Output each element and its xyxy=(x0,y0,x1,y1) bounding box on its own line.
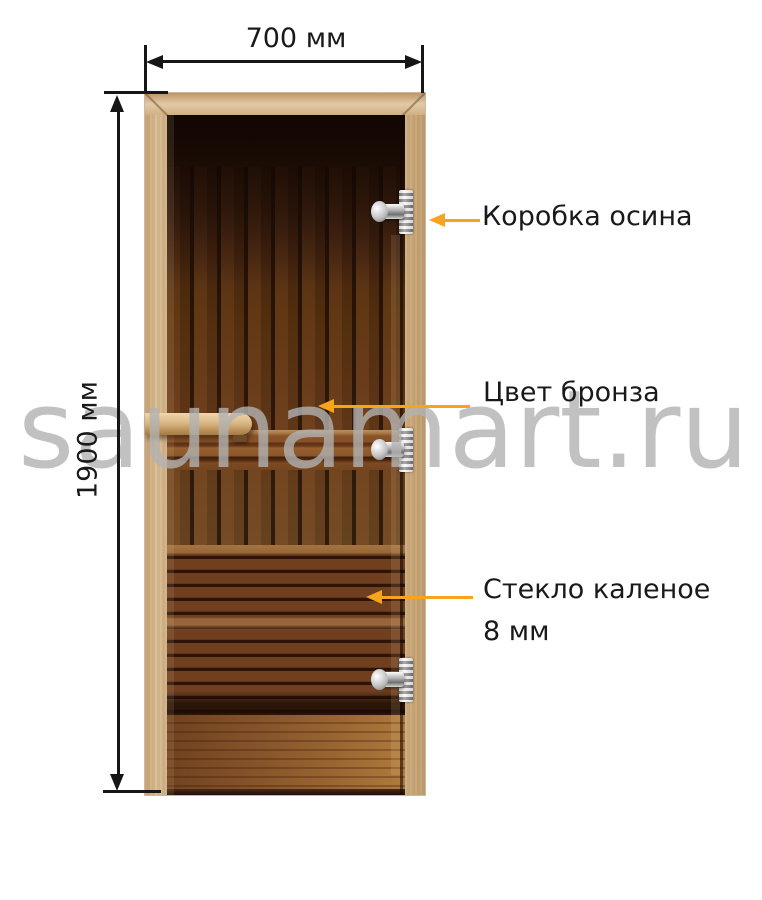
height-dim-arrow-down-icon xyxy=(110,774,124,791)
sauna-door-product-diagram: saunamart.ru 700 мм 1900 мм Коробка осин… xyxy=(0,0,762,900)
callout-color-arrowhead-icon xyxy=(318,399,334,413)
height-dim-arrow-up-icon xyxy=(110,95,124,112)
width-dimension-label: 700 мм xyxy=(246,23,347,54)
sauna-bench xyxy=(167,545,405,715)
callout-color-label: Цвет бронза xyxy=(483,377,660,408)
height-dimension-label: 1900 мм xyxy=(73,381,104,499)
callout-glass-label-line1: Стекло каленое xyxy=(483,574,710,605)
height-dim-tick-bottom xyxy=(103,790,161,793)
door-bottom-edge xyxy=(167,789,405,795)
width-dim-tick-right xyxy=(421,45,424,93)
door-frame-top xyxy=(145,93,425,115)
hinge-cap xyxy=(371,201,388,222)
sauna-ceiling-shadow xyxy=(167,115,405,287)
width-dim-tick-left xyxy=(144,45,147,93)
callout-frame-arrowhead-icon xyxy=(429,213,445,227)
door-hinge-top xyxy=(371,188,419,236)
width-dim-arrow-right-icon xyxy=(405,55,422,69)
callout-glass-arrow-line xyxy=(381,596,473,599)
height-dim-tick-top xyxy=(104,91,168,94)
width-dim-arrow-left-icon xyxy=(146,55,163,69)
width-dimension-line xyxy=(160,60,408,63)
callout-frame-label: Коробка осина xyxy=(482,201,693,232)
sauna-floor xyxy=(167,715,405,789)
door-hinge-bottom xyxy=(371,656,419,704)
height-dimension-line xyxy=(117,110,120,776)
callout-frame-arrow-line xyxy=(444,219,480,222)
hinge-cap xyxy=(371,669,388,690)
callout-glass-arrowhead-icon xyxy=(366,590,382,604)
callout-glass-label-line2: 8 мм xyxy=(483,616,550,647)
callout-color-arrow-line xyxy=(333,405,470,408)
